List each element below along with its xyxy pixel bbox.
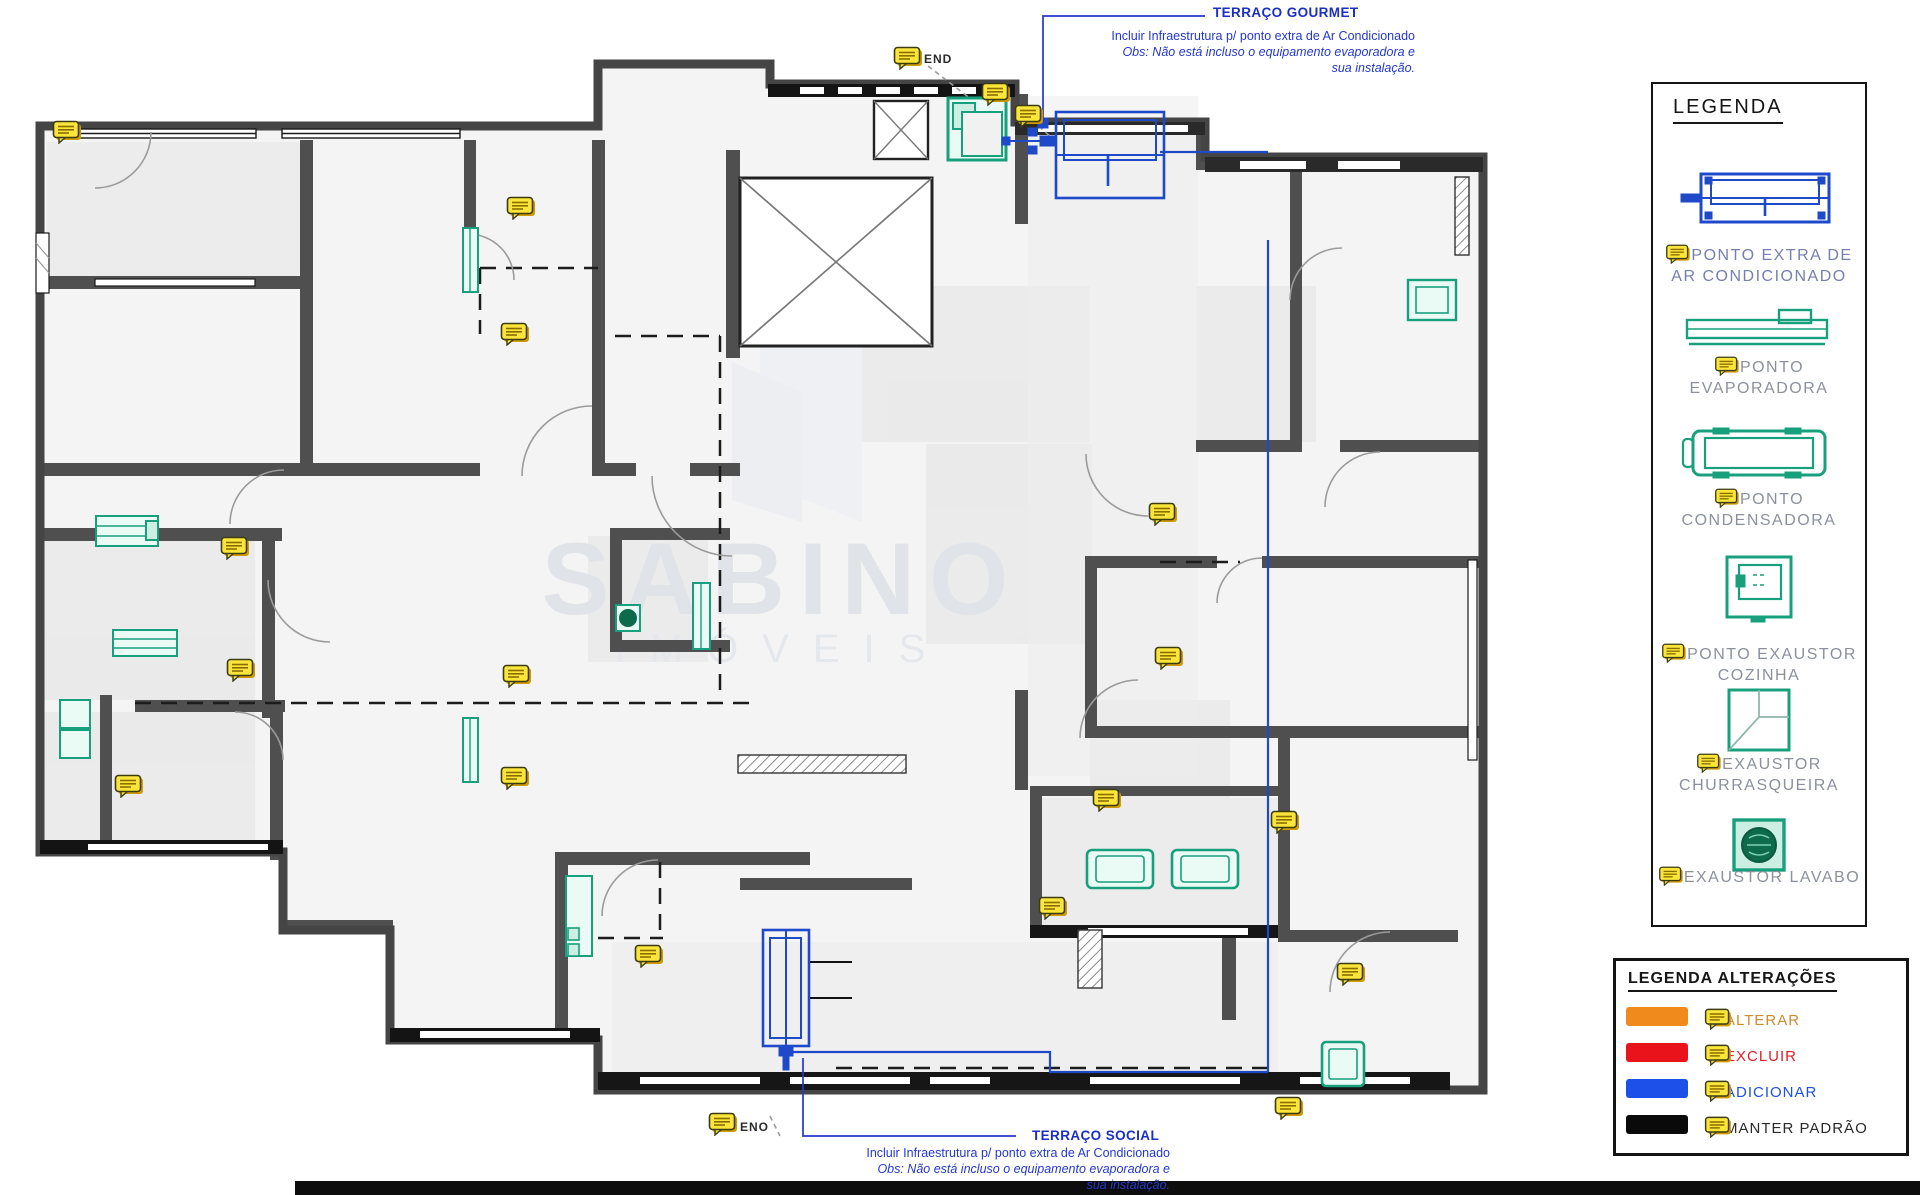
comment-bubble-icon [1696, 753, 1722, 773]
comment-bubble-icon [1665, 244, 1691, 264]
gourmet-note-line3: sua instalação. [1045, 60, 1415, 76]
comment-bubble-icon [1704, 1116, 1732, 1138]
legend-item-condensadora: PONTO CONDENSADORA [1653, 488, 1865, 531]
legend-symbol-condensadora-icon [1653, 423, 1865, 483]
color-swatch-excluir [1626, 1043, 1688, 1062]
comment-bubble-icon [1704, 1080, 1732, 1102]
legend-item-exaustor-cozinha: PONTO EXAUSTOR COZINHA [1653, 643, 1865, 686]
alteracoes-legend-box: LEGENDA ALTERAÇÕES ALTERAR EXCLUIR ADICI… [1613, 958, 1909, 1156]
social-note-lines: Incluir Infraestrutura p/ ponto extra de… [800, 1145, 1170, 1193]
legend-item-ac-extra: PONTO EXTRA DE AR CONDICIONADO [1653, 244, 1865, 287]
comment-bubble-icon [1714, 488, 1740, 508]
comment-bubble-icon [1714, 356, 1740, 376]
comment-bubble-icon [1704, 1044, 1732, 1066]
color-swatch-adicionar [1626, 1079, 1688, 1098]
social-note-line2: Obs: Não está incluso o equipamento evap… [800, 1161, 1170, 1177]
legend-item-exaustor-lavabo: EXAUSTOR LAVABO [1653, 866, 1865, 888]
legend-item-churrasqueira: EXAUSTOR CHURRASQUEIRA [1653, 753, 1865, 796]
gourmet-note-title: TERRAÇO GOURMET [1213, 5, 1359, 20]
alteracoes-row-alterar: ALTERAR [1616, 1007, 1906, 1029]
legend-symbol-churrasqueira-icon [1653, 687, 1865, 753]
legend-item-evaporadora: PONTO EVAPORADORA [1653, 356, 1865, 399]
legend-box: LEGENDA PONTO EXTRA DE AR CONDICIONADO P… [1651, 82, 1867, 927]
floor-plan-page: SABINO IMÓVEIS [0, 0, 1920, 1195]
alteracoes-row-excluir: EXCLUIR [1616, 1043, 1906, 1065]
social-note-line3: sua instalação. [800, 1177, 1170, 1193]
legend-symbol-exaustor-lavabo-icon [1653, 818, 1865, 872]
gourmet-note-lines: Incluir Infraestrutura p/ ponto extra de… [1045, 28, 1415, 76]
comment-bubble-icon[interactable] [710, 1114, 738, 1136]
gourmet-note-line1: Incluir Infraestrutura p/ ponto extra de… [1045, 28, 1415, 44]
alteracoes-row-manter-padrao: MANTER PADRÃO [1616, 1115, 1906, 1137]
comment-bubble-icon[interactable] [1276, 1098, 1304, 1120]
comment-bubble-icon[interactable] [895, 48, 923, 70]
alteracoes-row-adicionar: ADICIONAR [1616, 1079, 1906, 1101]
comment-bubble-icon [1704, 1008, 1732, 1030]
alteracoes-legend-title: LEGENDA ALTERAÇÕES [1628, 970, 1837, 992]
color-swatch-alterar [1626, 1007, 1688, 1026]
comment-bubble-icon [1658, 866, 1684, 886]
gourmet-note-line2: Obs: Não está incluso o equipamento evap… [1045, 44, 1415, 60]
legend-symbol-evaporadora-icon [1653, 306, 1865, 352]
end-marker-label: END [924, 52, 952, 66]
color-swatch-manter-padrao [1626, 1115, 1688, 1134]
legend-title: LEGENDA [1673, 96, 1783, 124]
eno-marker-label: ENO [740, 1120, 769, 1134]
legend-symbol-ac-extra-icon [1653, 168, 1865, 230]
comment-bubble-icon [1661, 643, 1687, 663]
social-note-title: TERRAÇO SOCIAL [1032, 1128, 1159, 1143]
legend-symbol-exaustor-cozinha-icon [1653, 553, 1865, 627]
social-note-line1: Incluir Infraestrutura p/ ponto extra de… [800, 1145, 1170, 1161]
